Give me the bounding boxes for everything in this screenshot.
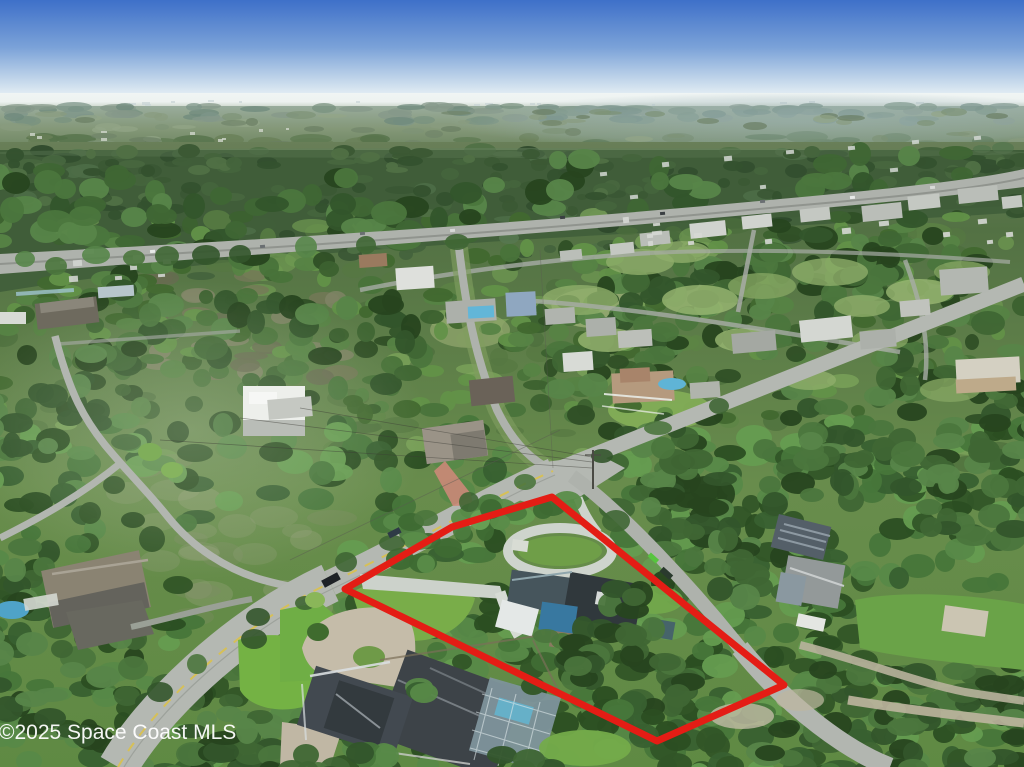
svg-text:©2025 Space Coast MLS: ©2025 Space Coast MLS xyxy=(0,721,236,744)
